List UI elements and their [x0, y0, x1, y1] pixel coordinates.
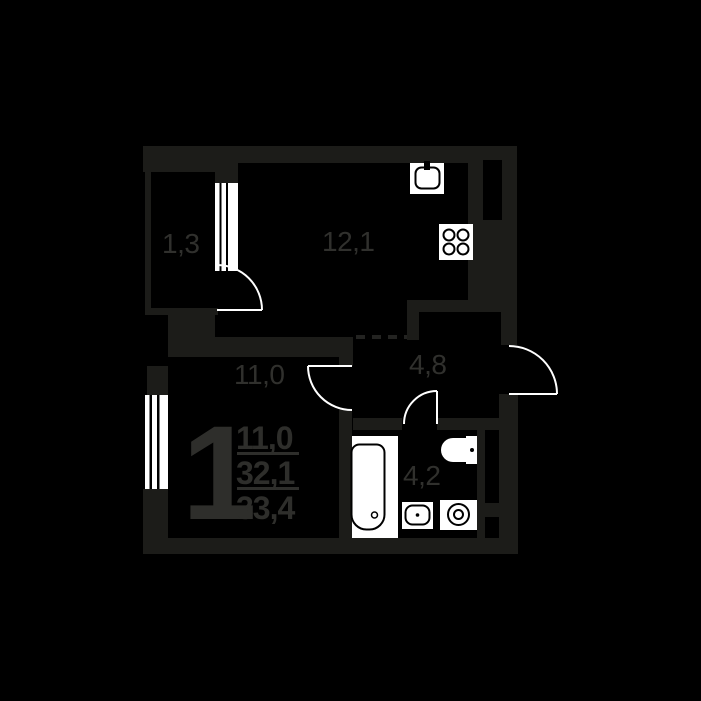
- toilet-icon: [441, 436, 477, 464]
- washbasin-icon: [402, 502, 433, 529]
- balcony-door-arc: [217, 265, 262, 310]
- kitchen-window-icon: [215, 183, 238, 271]
- wall-left-above-window: [147, 366, 168, 397]
- wall-kitchen-room-divider: [168, 337, 343, 357]
- wall-window-head: [215, 163, 238, 183]
- wall-room-bathroom: [339, 410, 352, 554]
- washing-machine-icon: [440, 500, 477, 530]
- wall-nook-top: [413, 300, 517, 312]
- wall-right-mid: [501, 311, 517, 345]
- wall-nook-left: [407, 300, 419, 340]
- floorplan-canvas: 1,3 12,1 11,0 4,8 4,2 1 11,0 32,1 33,4: [0, 0, 701, 701]
- entrance-door-arc: [509, 346, 557, 394]
- wall-right-low: [499, 394, 518, 554]
- wall-top-balcony: [143, 163, 218, 172]
- kitchen-sink-icon: [410, 161, 444, 194]
- bathroom-door-arc: [404, 391, 437, 424]
- room-door-arc: [308, 366, 352, 410]
- wall-top: [143, 146, 517, 163]
- wall-bath-top-right: [437, 418, 501, 430]
- summary-area-without-balcony: 32,1: [236, 457, 294, 489]
- room-area-label-hallway: 4,8: [409, 351, 446, 379]
- ventilation-shaft-niche: [483, 160, 502, 220]
- stove-icon: [439, 224, 473, 260]
- wall-bath-right: [477, 430, 485, 540]
- room-window-icon: [145, 395, 168, 489]
- bathtub-icon: [352, 436, 399, 538]
- room-area-label-kitchen-living: 12,1: [322, 228, 375, 256]
- room-area-label-bedroom: 11,0: [234, 361, 284, 389]
- floorplan-drawing: [0, 0, 701, 701]
- room-area-label-bathroom: 4,2: [403, 462, 440, 490]
- room-area-label-balcony: 1,3: [162, 230, 199, 258]
- summary-living-area: 11,0: [236, 422, 293, 454]
- summary-total-area: 33,4: [236, 492, 294, 524]
- wall-balcony-left: [145, 172, 151, 315]
- wall-shaft-tie: [485, 503, 499, 517]
- wall-bath-top-left: [353, 418, 402, 430]
- wall-room-door-column: [339, 337, 353, 366]
- wall-balcony-bottom: [145, 308, 218, 315]
